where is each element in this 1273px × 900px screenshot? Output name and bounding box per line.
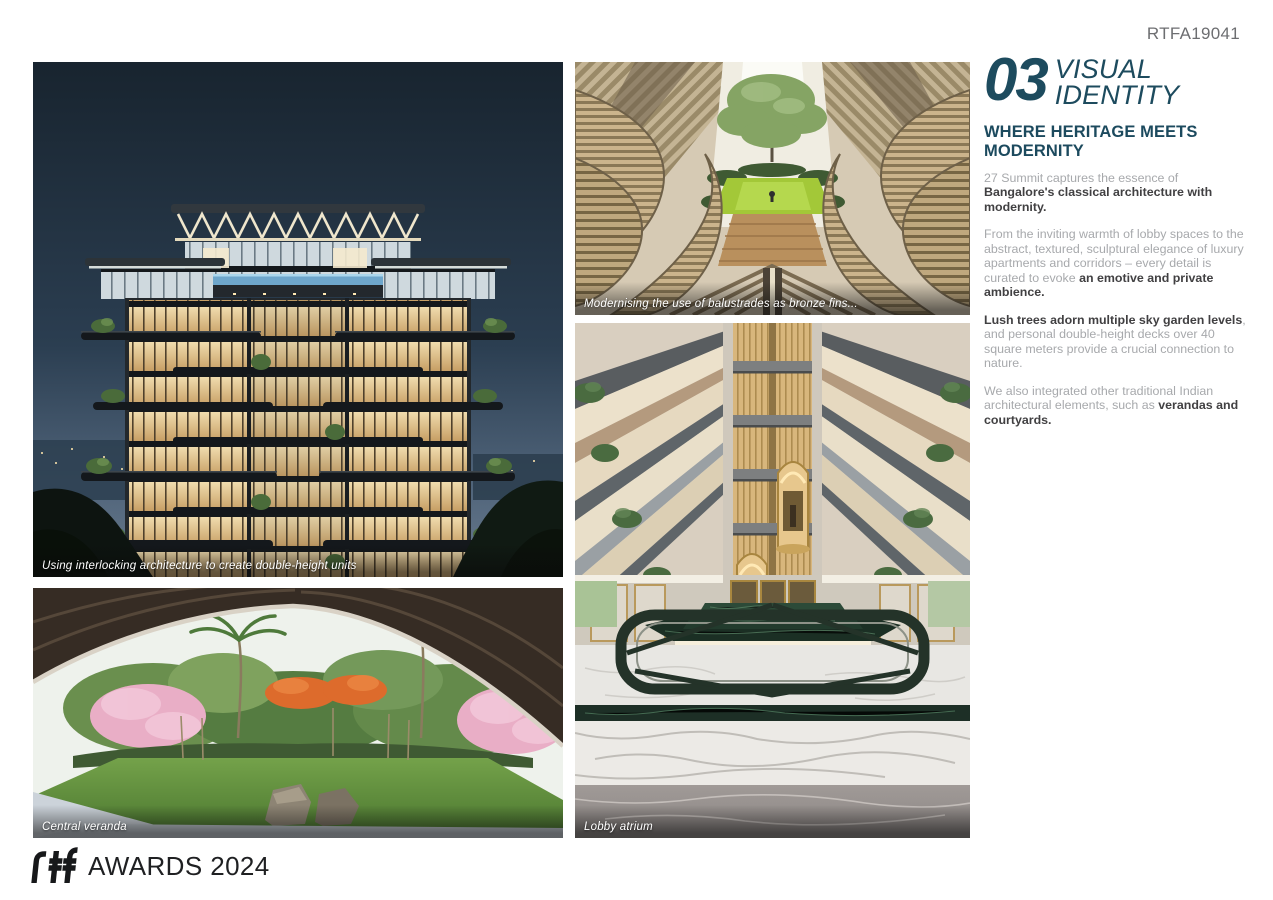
section-title-block: 03 VISUAL IDENTITY: [984, 52, 1248, 109]
veranda-photo: Central veranda: [33, 588, 563, 838]
section-heading: WHERE HERITAGE MEETS MODERNITY: [984, 123, 1248, 162]
paragraph: 27 Summit captures the essence of Bangal…: [984, 171, 1248, 215]
paragraph: We also integrated other traditional Ind…: [984, 384, 1248, 428]
body-copy: 27 Summit captures the essence of Bangal…: [984, 171, 1248, 428]
building-photo: Using interlocking architecture to creat…: [33, 62, 563, 577]
awards-text: AWARDS 2024: [88, 851, 270, 882]
section-number: 03: [984, 52, 1047, 107]
building-photo-caption: Using interlocking architecture to creat…: [33, 544, 563, 577]
footer: AWARDS 2024: [30, 845, 270, 887]
lobby-photo: Lobby atrium: [575, 323, 970, 838]
submission-code: RTFA19041: [1147, 24, 1240, 44]
lobby-photo-caption: Lobby atrium: [575, 805, 970, 838]
text-column: 03 VISUAL IDENTITY WHERE HERITAGE MEETS …: [984, 52, 1248, 440]
paragraph: Lush trees adorn multiple sky garden lev…: [984, 313, 1248, 371]
section-title-line1: VISUAL: [1055, 56, 1180, 82]
building-illustration: [33, 62, 563, 577]
lobby-illustration: [575, 323, 970, 838]
fins-illustration: [575, 62, 970, 315]
paragraph: From the inviting warmth of lobby spaces…: [984, 227, 1248, 300]
section-title-line2: IDENTITY: [1055, 82, 1180, 108]
fins-photo-caption: Modernising the use of balustrades as br…: [575, 282, 970, 315]
veranda-illustration: [33, 588, 563, 838]
veranda-photo-caption: Central veranda: [33, 805, 563, 838]
fins-photo: Modernising the use of balustrades as br…: [575, 62, 970, 315]
section-title: VISUAL IDENTITY: [1055, 56, 1180, 109]
presentation-board: RTFA19041: [0, 0, 1273, 900]
rtf-logo-icon: [30, 845, 78, 887]
